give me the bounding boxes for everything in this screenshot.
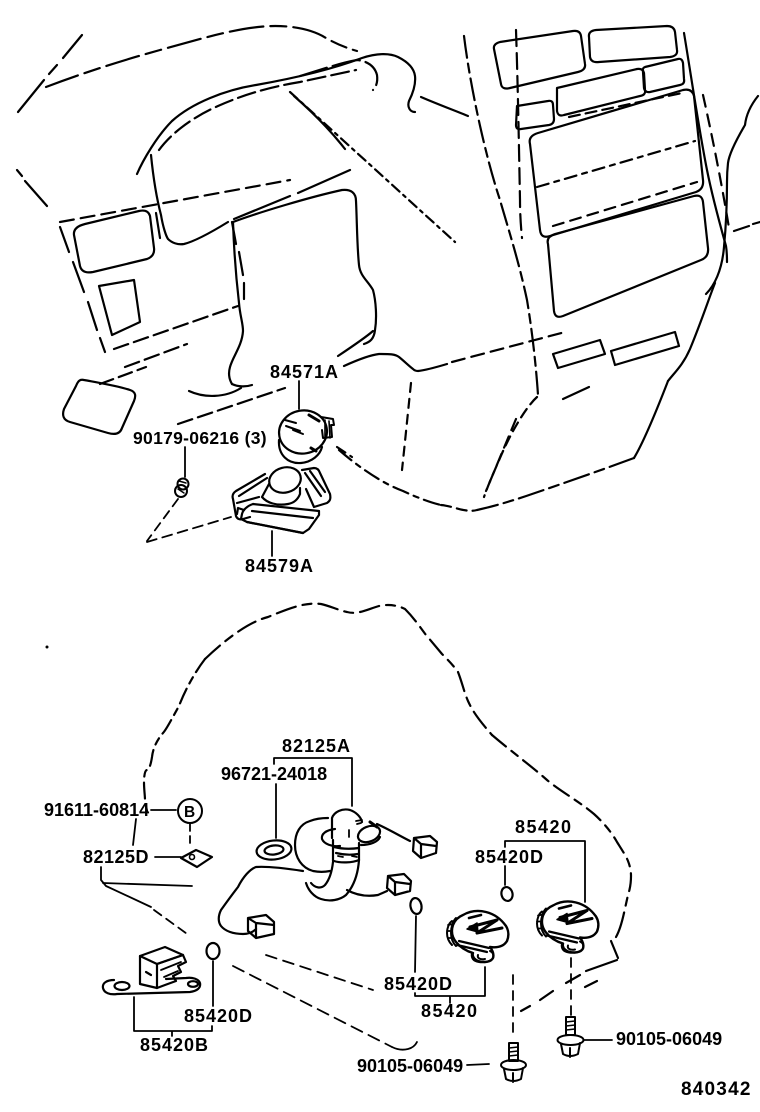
svg-text:90105-06049: 90105-06049: [357, 1056, 463, 1076]
svg-text:85420B: 85420B: [140, 1035, 209, 1055]
svg-text:B: B: [184, 804, 195, 821]
svg-text:840342: 840342: [681, 1079, 752, 1100]
svg-text:91611-60814: 91611-60814: [44, 800, 149, 820]
svg-text:84571A: 84571A: [270, 362, 339, 382]
svg-text:82125A: 82125A: [282, 736, 351, 756]
svg-text:85420D: 85420D: [475, 847, 544, 867]
svg-text:85420D: 85420D: [184, 1006, 253, 1026]
svg-text:90179-06216 (3): 90179-06216 (3): [133, 428, 267, 448]
svg-text:82125D: 82125D: [83, 847, 149, 867]
svg-text:85420D: 85420D: [384, 974, 453, 994]
svg-text:96721-24018: 96721-24018: [221, 764, 327, 784]
svg-text:85420: 85420: [515, 817, 573, 837]
svg-text:85420: 85420: [421, 1001, 479, 1021]
svg-text:84579A: 84579A: [245, 556, 314, 576]
svg-text:90105-06049: 90105-06049: [616, 1029, 722, 1049]
